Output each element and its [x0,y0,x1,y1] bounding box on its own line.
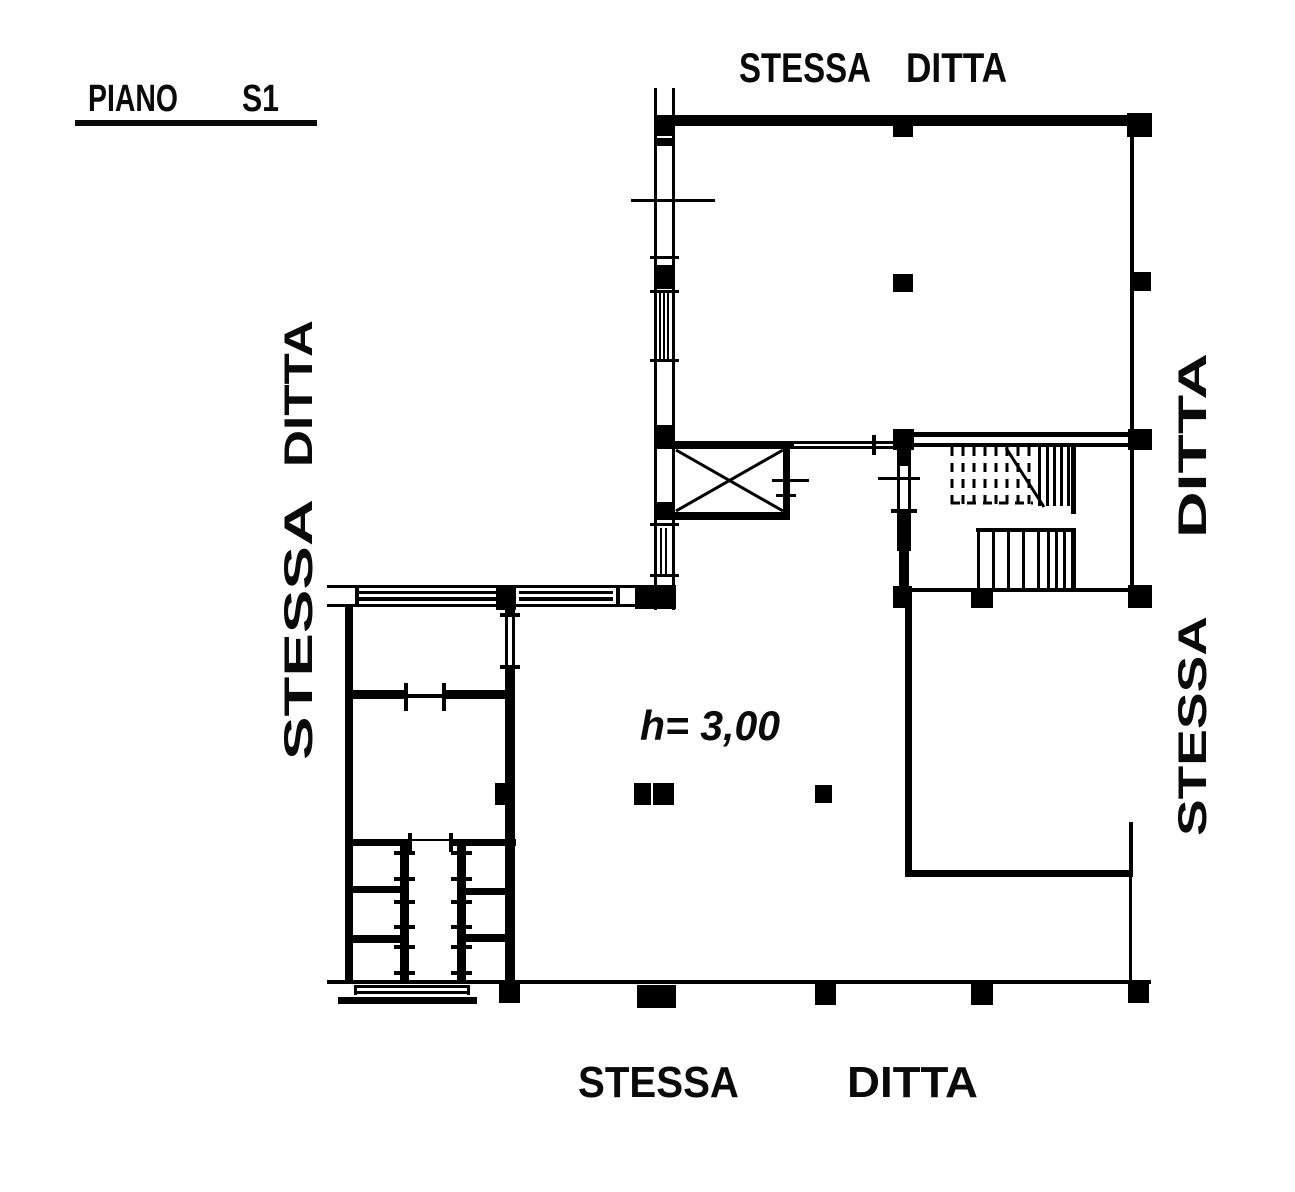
svg-text:S1: S1 [242,78,279,120]
svg-text:DITTA: DITTA [1171,353,1215,538]
svg-text:DITTA: DITTA [906,44,1007,91]
svg-text:STESSA: STESSA [578,1058,739,1107]
svg-text:STESSA: STESSA [277,499,321,760]
svg-text:STESSA: STESSA [1171,616,1215,836]
svg-text:h= 3,00: h= 3,00 [640,702,780,749]
svg-text:PIANO: PIANO [88,78,178,120]
svg-text:DITTA: DITTA [277,320,321,467]
svg-text:STESSA: STESSA [739,44,871,91]
svg-text:DITTA: DITTA [847,1058,978,1107]
